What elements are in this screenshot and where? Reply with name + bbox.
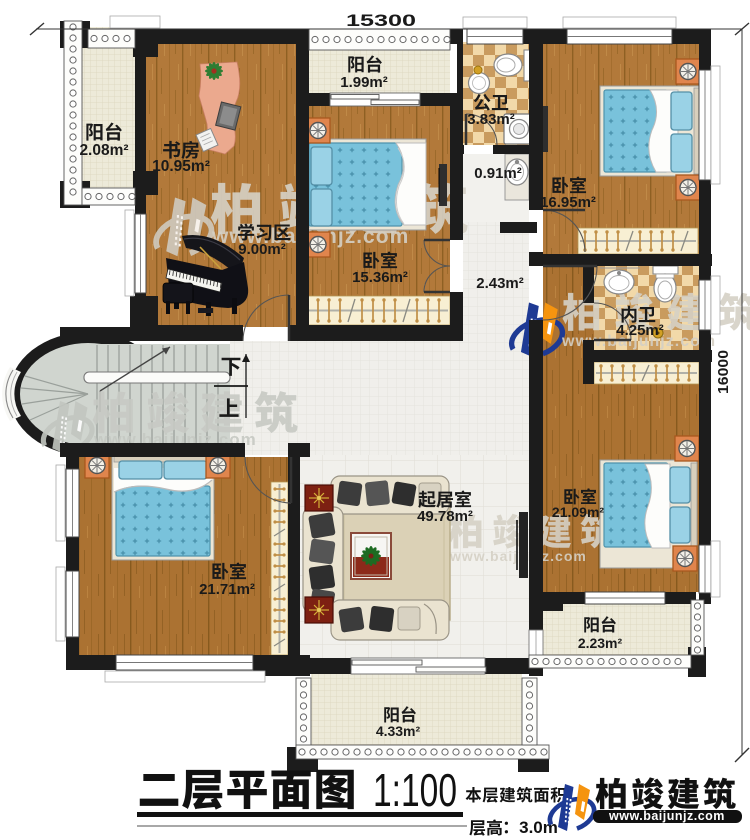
svg-text:4.33m²: 4.33m² (376, 723, 421, 739)
svg-text:9.00m²: 9.00m² (238, 241, 286, 258)
svg-text:21.71m²: 21.71m² (199, 581, 255, 598)
svg-text:0.91m²: 0.91m² (474, 165, 522, 182)
svg-text:www.baijunjz.com: www.baijunjz.com (449, 548, 587, 564)
svg-text:49.78m²: 49.78m² (417, 508, 473, 525)
svg-text:21.09m²: 21.09m² (552, 504, 604, 520)
svg-text:15.36m²: 15.36m² (352, 269, 408, 286)
svg-text:www.baijunjz.com: www.baijunjz.com (608, 809, 725, 823)
svg-text:15300: 15300 (346, 12, 416, 30)
svg-text:10.95m²: 10.95m² (152, 158, 210, 175)
svg-text:2.23m²: 2.23m² (578, 635, 623, 651)
svg-text:2.08m²: 2.08m² (79, 142, 128, 159)
svg-text:3.83m²: 3.83m² (467, 111, 515, 128)
svg-text:2.43m²: 2.43m² (476, 275, 524, 292)
svg-text:16.95m²: 16.95m² (540, 194, 596, 211)
svg-text:1:100: 1:100 (373, 764, 457, 816)
svg-text:1.99m²: 1.99m² (340, 74, 388, 91)
svg-text:4.25m²: 4.25m² (616, 322, 664, 339)
svg-text:16000: 16000 (715, 350, 732, 394)
